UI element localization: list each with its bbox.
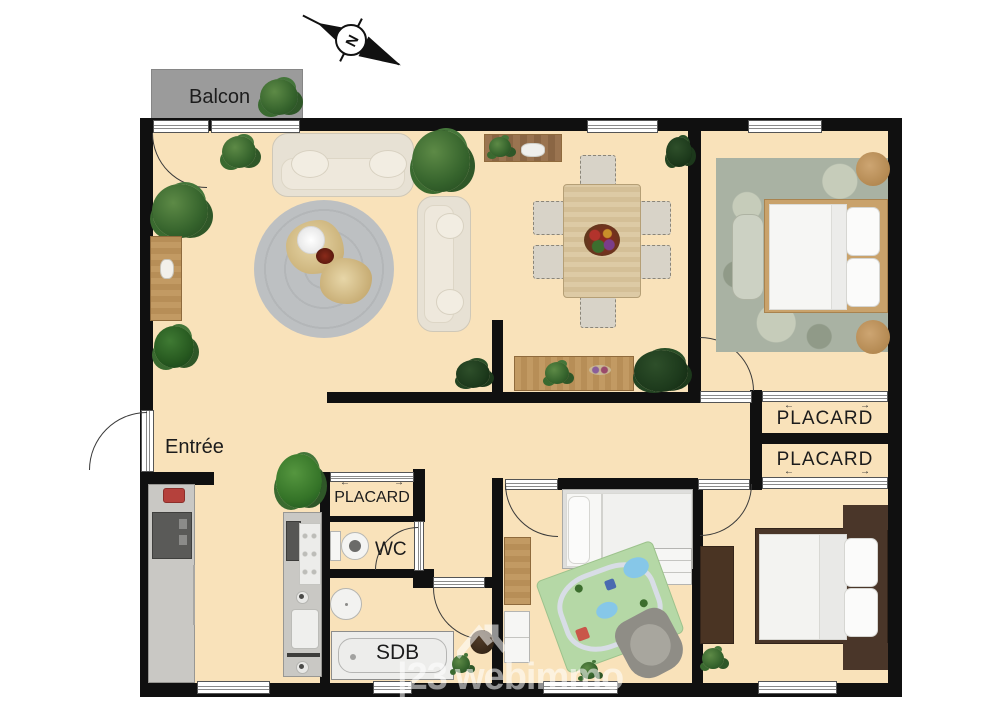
bedroom2-window	[758, 681, 837, 694]
kitchen-oven	[152, 512, 192, 559]
watermark-brand: webimmo	[455, 656, 623, 699]
wall-closet-hall-right	[413, 469, 425, 522]
bedroom2-plant	[702, 648, 724, 669]
watermark: |23 webimmo	[395, 618, 635, 700]
wall-hallway-top	[327, 392, 700, 403]
kitchen-coffee-machine	[163, 488, 185, 503]
arrow-right-icon: →	[394, 479, 404, 487]
bedroom1-bench	[732, 214, 764, 300]
entree-label: Entrée	[165, 436, 224, 459]
bedroom2-rug	[700, 546, 734, 644]
balcony-window	[211, 120, 300, 133]
sdb-door-frame	[433, 577, 485, 588]
closet-hall-arrows: ← →	[340, 479, 404, 487]
wall-sdb-corner-left	[413, 569, 434, 588]
arrow-left-icon: ←	[340, 479, 350, 487]
wall-closet-wc-divider	[330, 516, 425, 522]
living-sideboard	[150, 236, 182, 321]
dining-window	[587, 120, 658, 133]
living-plant-large	[412, 130, 470, 192]
living-bush	[222, 136, 256, 168]
dining-plant-right	[634, 350, 688, 392]
sofa-right	[417, 196, 471, 332]
watermark-prefix: |23	[397, 656, 447, 699]
kitchen-island	[283, 512, 322, 677]
bedroom2-bed	[755, 505, 888, 670]
compass-north-label: N	[341, 31, 361, 48]
wc-toilet-bowl	[341, 532, 369, 560]
balcony-plant	[260, 79, 298, 115]
closet2-arrows: ← →	[784, 468, 870, 476]
island-cup-rack	[299, 523, 321, 585]
compass: N	[296, 8, 406, 72]
kitchen-window	[197, 681, 270, 694]
living-tree	[152, 184, 208, 238]
bedroom1-nightstand-bottom	[856, 320, 890, 354]
dining-wall-shelf	[484, 134, 562, 162]
table-decor-red	[316, 248, 334, 264]
dining-chair-bottom	[580, 296, 616, 328]
dining-chair-top	[580, 155, 616, 187]
bedroom1-door-frame	[700, 391, 752, 403]
living-palm	[154, 326, 194, 368]
dining-corner-plant	[666, 137, 692, 167]
balcony-door-frame	[153, 120, 209, 133]
closet1-label: PLACARD	[762, 408, 888, 430]
floor-plan: N Balcon	[0, 0, 1000, 707]
sofa-top	[272, 133, 414, 197]
bedroom1-bed	[764, 199, 888, 313]
coffee-table-2	[320, 258, 372, 304]
hall-plant-left-of-stub	[456, 360, 490, 388]
sdb-sink	[330, 588, 362, 620]
island-sink	[291, 609, 319, 649]
wall-living-dining-stub	[492, 320, 503, 403]
dining-chair-left-2	[533, 245, 565, 279]
outer-wall-right	[888, 118, 902, 697]
wc-toilet-tank	[330, 531, 341, 561]
kitchen-palm	[276, 454, 322, 508]
wall-wc-sdb-divider	[328, 569, 422, 578]
balcony-label: Balcon	[189, 86, 250, 109]
arrow-left-icon: ←	[784, 468, 794, 476]
children-desk	[504, 537, 531, 605]
dining-centerpiece	[584, 224, 620, 256]
dining-chair-right-2	[639, 245, 671, 279]
wc-label: WC	[375, 539, 407, 561]
bedroom1-window	[748, 120, 822, 133]
dining-chair-right-1	[639, 201, 671, 235]
arrow-right-icon: →	[860, 468, 870, 476]
dining-chair-left-1	[533, 201, 565, 235]
closet-hall-label: PLACARD	[330, 489, 414, 507]
compass-rose: N	[335, 24, 367, 56]
bedroom1-nightstand-top	[856, 152, 890, 186]
closet2-sliding-door	[762, 477, 888, 489]
dining-sideboard	[514, 356, 634, 391]
wall-between-closets	[752, 433, 902, 444]
entrance-door-arc	[89, 412, 147, 470]
kitchen-counter-left	[148, 484, 195, 683]
